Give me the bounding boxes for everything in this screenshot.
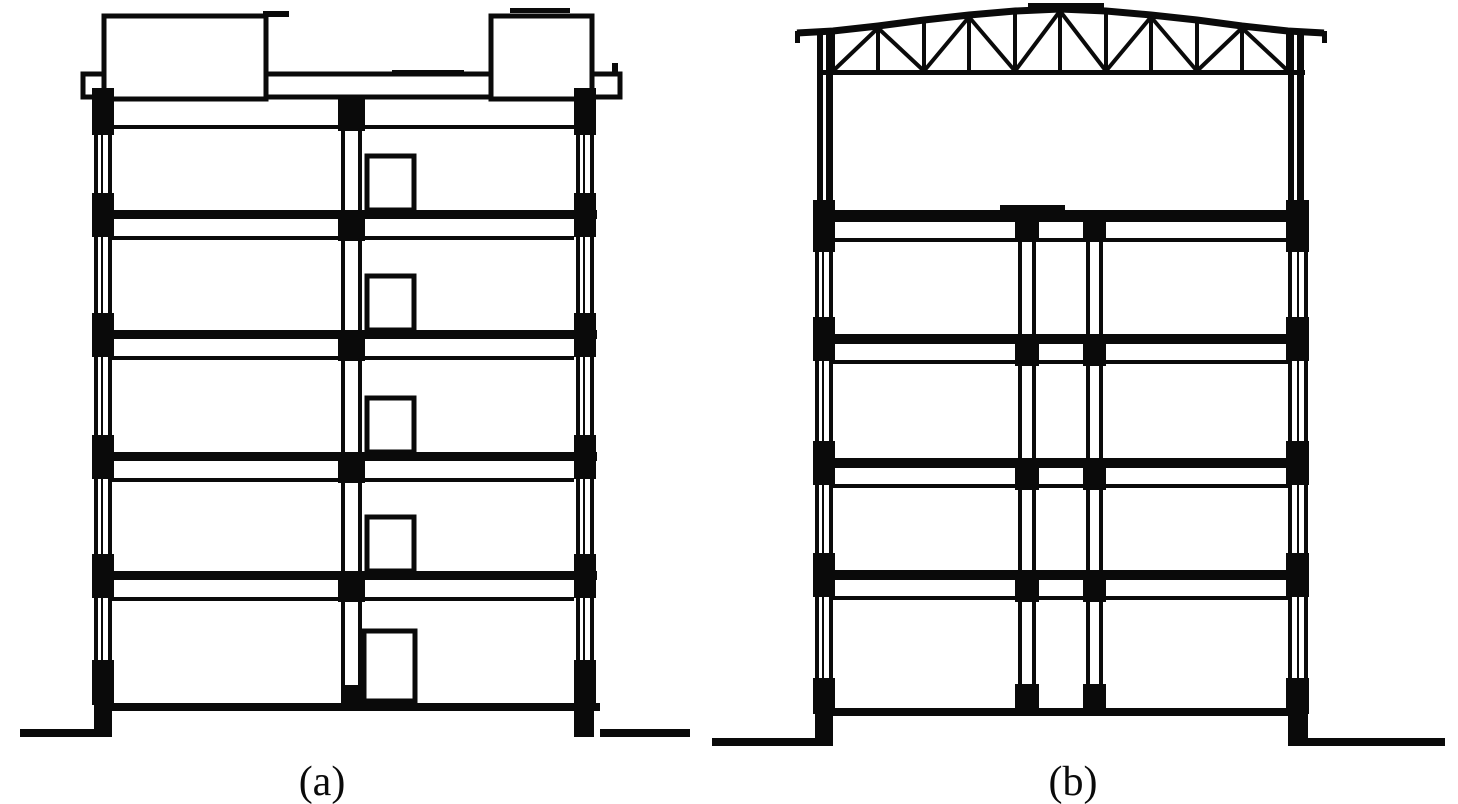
panel-label-b: (b) xyxy=(1049,759,1098,804)
column-foot xyxy=(341,685,362,704)
truss-bottom-chord xyxy=(823,70,1305,75)
door-opening-storey-2 xyxy=(367,517,414,571)
floor-junction-block xyxy=(92,88,114,135)
truss-diagonal xyxy=(1060,11,1106,71)
truss-diagonal xyxy=(878,28,924,71)
floor-junction-block xyxy=(574,88,596,135)
exterior-wall-right xyxy=(574,88,596,737)
truss-diagonal xyxy=(833,28,878,71)
scan-tick xyxy=(263,11,289,17)
column-line xyxy=(358,99,362,704)
truss-verticals xyxy=(833,9,1288,73)
ceiling-line xyxy=(833,360,1288,364)
figure-canvas: (a) (b) xyxy=(0,0,1458,804)
floor-junction-block xyxy=(92,660,114,705)
truss-diagonal xyxy=(1106,17,1151,71)
column-line xyxy=(341,99,345,704)
floor-slab xyxy=(97,210,597,219)
door-opening-storey-5 xyxy=(367,156,414,210)
hall-column-left xyxy=(817,31,833,210)
ceiling-line xyxy=(112,478,574,482)
central-column xyxy=(338,99,365,704)
truss-diagonal xyxy=(969,17,1015,71)
column-line xyxy=(1297,31,1304,210)
column-line xyxy=(1288,31,1294,210)
floor-junction-block xyxy=(1286,553,1309,597)
hall-floor-slab xyxy=(833,210,1288,222)
section-drawing: (a) (b) xyxy=(0,0,1458,804)
ceiling-line xyxy=(112,597,574,601)
truss-diagonal xyxy=(1197,28,1242,71)
floor-slab xyxy=(97,330,597,339)
floor-junction-block xyxy=(813,317,835,361)
ground-floor-line xyxy=(823,708,1305,716)
floor-junction-block xyxy=(1286,317,1309,361)
truss-diagonal xyxy=(1151,17,1197,71)
truss-diagonal xyxy=(1242,28,1288,71)
exterior-wall-right xyxy=(1286,200,1309,746)
ceiling-line xyxy=(112,125,574,129)
hall-column-right xyxy=(1288,31,1304,210)
eave-tick-right xyxy=(1322,31,1327,43)
ceiling-line xyxy=(833,238,1288,242)
truss-diagonal xyxy=(1015,11,1060,71)
ceiling-line xyxy=(112,236,574,240)
roof-truss xyxy=(795,3,1327,75)
door-opening-storey-4 xyxy=(367,276,414,330)
grade-line-right xyxy=(600,729,690,737)
eave-tick-left xyxy=(795,31,800,43)
floor-junction-block xyxy=(1286,200,1309,252)
truss-apex-cap xyxy=(1028,3,1104,11)
ground-floor-line xyxy=(100,703,600,711)
exterior-wall-left xyxy=(813,200,835,746)
floor-slab xyxy=(97,571,597,580)
floor-junction-block xyxy=(1286,441,1309,485)
column-foot xyxy=(1083,684,1106,708)
grade-line-left xyxy=(712,738,818,746)
window-mullion xyxy=(101,99,103,703)
ceiling-line xyxy=(112,356,574,360)
floor-slab xyxy=(97,452,597,461)
ceiling-line xyxy=(833,484,1288,488)
floor-junction-block xyxy=(813,200,835,252)
floor-slab xyxy=(833,570,1288,580)
wall-inner-line xyxy=(576,99,580,703)
ceiling-line xyxy=(833,596,1288,600)
penthouse-right xyxy=(491,16,592,99)
building-section-a xyxy=(20,8,690,737)
exterior-wall-left xyxy=(92,88,114,737)
panel-label-a: (a) xyxy=(299,759,346,804)
grade-line-left xyxy=(20,729,100,737)
window-mullion xyxy=(583,99,585,703)
floor-slab xyxy=(833,458,1288,468)
column-line xyxy=(826,31,833,210)
truss-diagonal xyxy=(924,17,969,71)
wall-inner-line xyxy=(108,99,112,703)
grade-line-right xyxy=(1304,738,1445,746)
floor-junction-block xyxy=(813,553,835,597)
floor-junction-block xyxy=(813,441,835,485)
column-line xyxy=(817,31,823,210)
door-opening-ground xyxy=(364,631,415,701)
floor-junction-block xyxy=(574,660,596,705)
floor-slab xyxy=(833,334,1288,344)
column-foot xyxy=(1015,684,1039,708)
scan-tick xyxy=(510,8,570,13)
penthouse-left xyxy=(104,16,266,99)
cornice-tick xyxy=(612,63,618,75)
scan-smudge xyxy=(1000,205,1065,211)
door-opening-storey-3 xyxy=(367,398,414,452)
building-section-b xyxy=(712,3,1445,746)
scan-smudge xyxy=(392,70,464,76)
